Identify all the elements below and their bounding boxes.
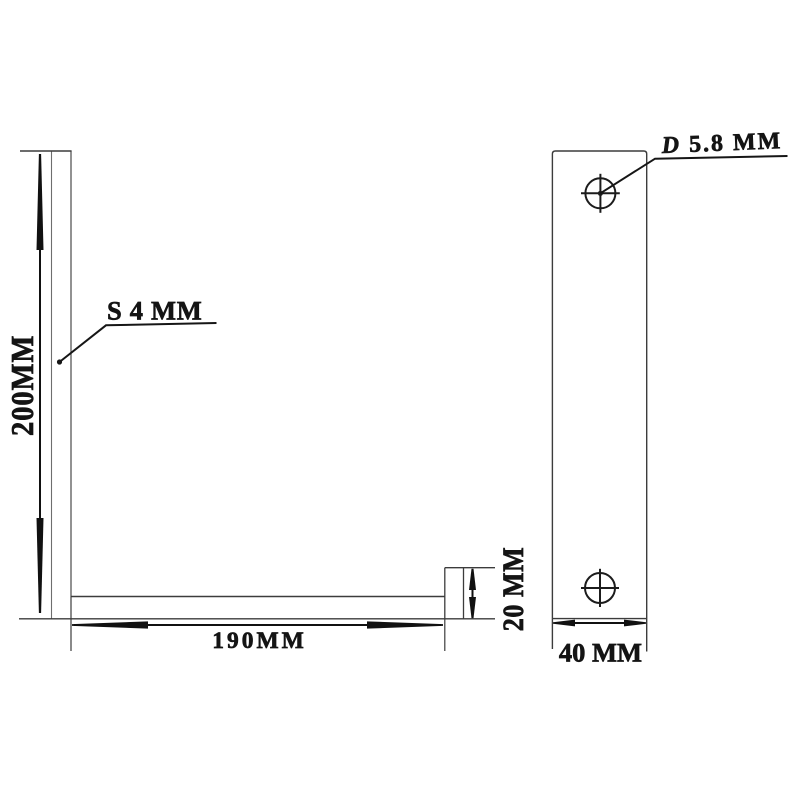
svg-text:S 4 MM: S 4 MM (107, 296, 202, 326)
svg-text:40 MM: 40 MM (559, 638, 642, 668)
svg-text:200MM: 200MM (6, 335, 41, 436)
svg-text:20 MM: 20 MM (497, 547, 530, 632)
svg-text:190MM: 190MM (212, 628, 307, 654)
svg-text:D 5.8 MM: D 5.8 MM (660, 128, 783, 159)
